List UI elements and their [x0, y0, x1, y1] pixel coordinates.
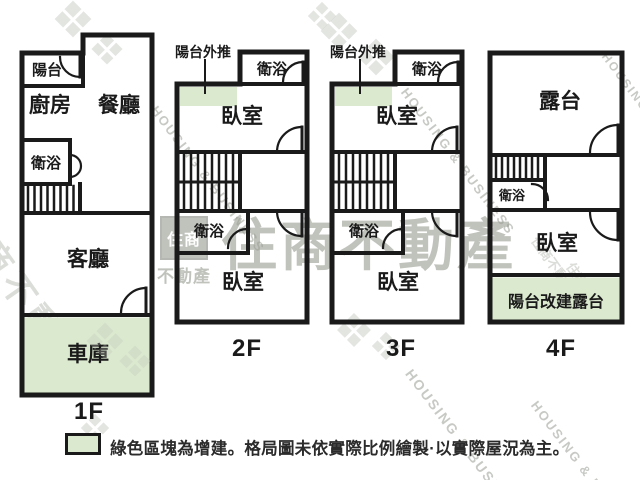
- stairs-4f: [496, 157, 538, 178]
- balcony-pushout-area-2f: [180, 87, 237, 106]
- legend-swatch-rect: [67, 435, 100, 454]
- room-label-garage-1f: 車庫: [67, 342, 109, 366]
- room-label-bath-mid-3f: 衛浴: [348, 222, 380, 240]
- room-label-bedroom-bottom-3f: 臥室: [377, 270, 419, 294]
- door-leaves-2f: [302, 62, 303, 236]
- inner-walls-4f: [490, 155, 622, 275]
- room-label-bedroom-top-3f: 臥室: [376, 104, 418, 128]
- room-label-bath-top-2f: 衛浴: [256, 60, 288, 78]
- inner-walls-1f: [22, 53, 152, 315]
- floor-label-1f: 1F: [74, 398, 104, 425]
- room-label-bath-1f: 衛浴: [30, 154, 62, 172]
- room-label-bath-mid-2f: 衛浴: [193, 222, 225, 240]
- room-label-living-1f: 客廳: [67, 247, 109, 271]
- door-leaves-3f: [457, 62, 458, 236]
- legend-green-swatch: [65, 433, 101, 455]
- floor-label-2f: 2F: [232, 335, 262, 362]
- room-label-kitchen-1f: 廚房: [29, 93, 71, 117]
- floor-label-3f: 3F: [386, 335, 416, 362]
- addition-areas: [25, 87, 620, 393]
- room-label-terrace-4f: 露台: [539, 89, 581, 113]
- room-label-bedroom-bottom-2f: 臥室: [222, 270, 264, 294]
- floor-label-4f: 4F: [546, 335, 576, 362]
- room-label-balcony-1f: 陽台: [32, 61, 62, 79]
- floorplan-canvas: 住商 不動產 住商不動產 HOUSING & BUSINESS HOUSING …: [0, 0, 640, 480]
- stairs-1f: [28, 186, 74, 211]
- annotation-2f: 陽台外推: [175, 44, 231, 60]
- room-label-bedroom-4f: 臥室: [536, 231, 578, 255]
- room-label-bath-top-3f: 衛浴: [411, 60, 443, 78]
- room-label-bath-4f: 衛浴: [498, 188, 526, 203]
- balcony-pushout-area-3f: [335, 87, 392, 106]
- room-label-dining-1f: 餐廳: [98, 93, 140, 117]
- legend-text: 綠色區塊為增建。格局圖未依實際比例繪製·以實際屋況為主。: [110, 435, 569, 459]
- room-label-bedroom-top-2f: 臥室: [221, 104, 263, 128]
- floorplan-drawing: 陽台 廚房 餐廳 衛浴 客廳 車庫 1F 陽台外推 衛浴 臥室 衛浴 臥室 2F…: [0, 0, 640, 480]
- annotation-3f: 陽台外推: [330, 44, 386, 60]
- room-label-balcony-terrace-4f: 陽台改建露台: [508, 292, 604, 311]
